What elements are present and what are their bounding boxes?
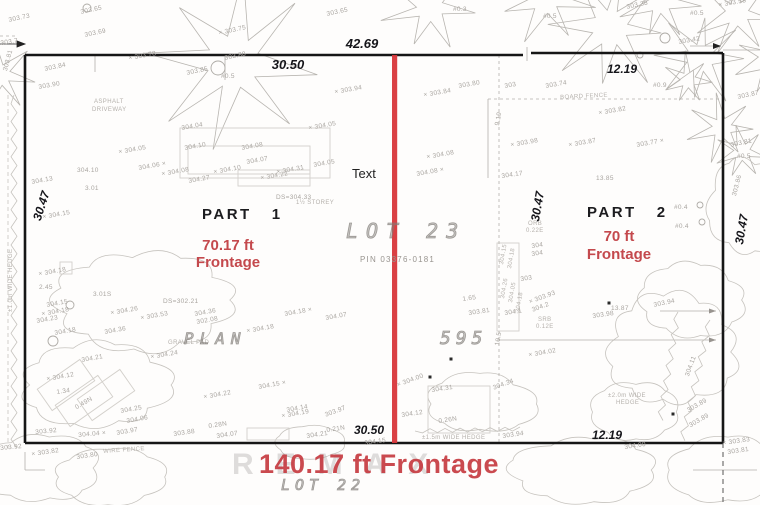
survey-annotation: 303.38 [626, 0, 649, 11]
survey-annotation: 1.34 [56, 387, 71, 396]
survey-annotation: ±1.5m WIDE HEDGE [422, 435, 485, 441]
survey-annotation: 303.92 [0, 443, 22, 452]
survey-annotation: 0.12E [536, 324, 554, 330]
dimension-top-total: 42.69 [330, 36, 394, 51]
part2-frontage-line1: 70 ft [588, 228, 650, 245]
survey-annotation: WIRE FENCE [103, 446, 145, 455]
survey-annotation: × 304.18 [246, 323, 275, 335]
plan-label: PLAN [184, 329, 247, 348]
survey-annotation: 304.36 [104, 325, 127, 336]
part2-word: PART [587, 204, 637, 221]
part1-title: PART1 [202, 206, 283, 223]
survey-annotation: 303.65 [80, 4, 103, 15]
lot-22-label: LOT 22 [281, 476, 365, 494]
survey-annotation: 303.92 [35, 427, 57, 436]
survey-annotation: 303.69 [84, 27, 107, 38]
survey-annotation: 10.5 [494, 331, 503, 346]
dimension-top-left: 30.50 [262, 57, 314, 72]
survey-annotation: 304.07 [325, 311, 348, 322]
survey-annotation: 303.73 [8, 12, 31, 23]
survey-annotation: × 303.94 [334, 84, 363, 96]
survey-annotation: #0.9 [653, 82, 667, 89]
survey-annotation: 303.81 [730, 137, 753, 148]
survey-annotation: SRB [538, 317, 552, 323]
survey-annotation: #0.4 [675, 223, 689, 230]
survey-annotation: 304.15 [364, 437, 386, 447]
survey-annotation: × 304.19 [281, 408, 310, 420]
survey-annotation: 303.85 [186, 65, 209, 76]
part1-number: 1 [272, 206, 283, 223]
survey-annotation: 3.01S [93, 291, 112, 298]
survey-annotation: 303.84 [44, 61, 67, 72]
survey-annotation: 0.22E [526, 228, 544, 234]
survey-annotation: 303 [504, 81, 517, 90]
survey-annotation: 303 [520, 274, 533, 283]
survey-annotation: × 303.78 [128, 50, 157, 62]
survey-annotation: 303.88 [224, 50, 247, 61]
survey-annotation: 304.18 [54, 326, 77, 337]
survey-annotation: 304.05 [313, 158, 336, 169]
survey-annotation: × 303.82 [31, 447, 60, 458]
survey-annotation: 304.25 [120, 404, 143, 415]
survey-annotation: × 304.02 [528, 347, 557, 359]
survey-annotation: 303.87 [737, 89, 760, 100]
survey-annotation: 303.80 [76, 451, 98, 461]
survey-annotation: 303.89 [686, 397, 708, 414]
survey-annotation: #0.5 [221, 73, 235, 80]
survey-annotation: × 304.26 [110, 305, 139, 317]
survey-annotation: 304.21 [306, 430, 328, 440]
survey-annotation: DS=302.21 [163, 298, 198, 305]
survey-annotation: × 303.87 [568, 137, 597, 149]
survey-annotation: 303.80 [458, 79, 481, 90]
survey-annotation: 303.94 [502, 430, 524, 440]
survey-annotation: 304 [531, 249, 544, 258]
survey-annotation: 304.18 × [284, 306, 313, 318]
survey-annotation: 304.13 [31, 175, 54, 186]
survey-annotation: 304.34 [492, 378, 515, 392]
lot-23-label: LOT 23 [346, 219, 466, 243]
survey-annotation: 9.19 [494, 111, 503, 126]
survey-annotation: × 303.98 [510, 137, 539, 149]
survey-annotation: 1.65 [462, 294, 477, 303]
survey-annotation: × 304.22 [203, 389, 232, 401]
survey-annotation: 304.07 [246, 155, 269, 166]
survey-annotation: 0.21N [326, 424, 346, 434]
survey-annotation: 0.49N [74, 396, 94, 411]
survey-annotation: 2.45 [39, 284, 53, 291]
survey-annotation: 303.7 [0, 38, 19, 47]
survey-annotation: 303.97 [324, 405, 347, 419]
survey-annotation: #0.5 [690, 10, 704, 17]
survey-annotation: 303.88 [173, 428, 195, 438]
survey-annotation: 303.89 [688, 412, 710, 429]
survey-annotation: 304.31 [431, 384, 453, 394]
survey-annotation: #0.5 [737, 153, 751, 160]
survey-annotation: 0.28N [208, 420, 228, 430]
survey-annotation: 303.42 [678, 35, 701, 46]
text-annotation: Text [352, 166, 376, 181]
pin-label: PIN 03376-0181 [360, 255, 435, 264]
survey-annotation: 304.12 [401, 409, 423, 419]
dimension-bottom-left: 30.50 [346, 423, 392, 437]
survey-annotation: 304.10 [77, 167, 99, 174]
survey-annotation: × 303.53 [140, 310, 169, 322]
survey-annotation: × 303.75 [218, 24, 247, 37]
survey-annotation: 304.04 [181, 121, 204, 132]
survey-annotation: 304.11 [684, 355, 698, 377]
survey-annotation: 304.23 [36, 314, 59, 325]
survey-annotation: 304.06 [126, 414, 149, 425]
survey-annotation: #0.3 [453, 6, 467, 13]
survey-annotation: 13.85 [596, 175, 614, 182]
survey-annotation: × 304.05 [118, 144, 147, 156]
survey-annotation: × 304.31 [276, 164, 305, 176]
survey-annotation: #0.5 [543, 13, 557, 20]
survey-annotation: 303.81 [2, 49, 14, 72]
survey-annotation: 304.18 [507, 248, 517, 269]
survey-annotation: 303.65 [326, 6, 349, 17]
part1-word: PART [202, 206, 252, 223]
survey-annotation: 303.81 [727, 446, 749, 456]
survey-annotation: 304.21 [81, 353, 104, 364]
survey-annotation: ±2.0m WIDE [608, 393, 646, 399]
survey-annotation: × 304.08 [161, 166, 190, 178]
dimension-bottom-right: 12.19 [584, 428, 630, 442]
survey-annotation: × 304.24 [150, 349, 179, 361]
survey-annotation: HEDGE [616, 400, 639, 406]
survey-annotation: 303.94 [653, 297, 676, 308]
survey-annotation: × 304.18 [38, 266, 67, 278]
survey-annotation: BOARD FENCE [560, 93, 608, 101]
survey-annotation: × 304.05 [308, 120, 337, 132]
part1-frontage-line2: Frontage [182, 254, 274, 271]
survey-annotation: 0.26N [438, 415, 458, 425]
part2-frontage-line2: Frontage [576, 246, 662, 263]
survey-annotation: × 304.10 [213, 164, 242, 176]
survey-annotation: 303.97 [116, 426, 139, 437]
survey-annotation: 304.07 [216, 430, 238, 440]
survey-annotation: 304.04 × [78, 430, 106, 439]
survey-plan-image: 303.73303.65303.69303.7× 303.78303.84303… [0, 0, 760, 505]
part2-title: PART2 [587, 204, 668, 221]
survey-annotation: × 303.82 [598, 105, 627, 117]
survey-annotation: 303.77 × [636, 137, 665, 149]
survey-annotation: 303.74 [545, 79, 568, 90]
survey-annotation: DRIVEWAY [92, 107, 127, 113]
survey-annotation: 304.08 × [416, 166, 445, 178]
survey-annotation: #0.4 [674, 204, 688, 211]
survey-annotation: 304.18 [515, 292, 525, 313]
survey-annotation: 303.90 [38, 80, 61, 91]
survey-annotation: 304.17 [501, 170, 523, 180]
plan-number: 595 [440, 328, 488, 349]
survey-annotation: 304.27 [188, 174, 211, 185]
part2-number: 2 [657, 204, 668, 221]
survey-annotation: 3.01 [85, 185, 99, 192]
survey-annotation: × 304.08 [426, 149, 455, 161]
survey-annotation: 304.10 [184, 141, 207, 152]
survey-annotation: × 303.84 [423, 87, 452, 99]
survey-annotation: 303.98 [592, 310, 614, 320]
survey-annotation: 304.08 [241, 141, 264, 152]
survey-annotation: 304.00 [624, 441, 646, 451]
dimension-top-right: 12.19 [596, 62, 648, 76]
survey-annotation: ASPHALT [94, 99, 124, 105]
survey-annotation: 304.15 × [258, 379, 287, 391]
survey-annotation: × 304.00 [396, 372, 425, 388]
survey-annotation: ±1.0m WIDE HEDGE [8, 249, 14, 312]
part1-frontage-line1: 70.17 ft [182, 237, 274, 254]
survey-annotation: 1½ STOREY [296, 200, 334, 206]
survey-annotation: 303.81 [468, 307, 490, 317]
survey-annotation: × 303.58 [718, 0, 747, 9]
survey-annotation: 303.86 [731, 174, 743, 197]
survey-annotation: × 304.12 [46, 371, 75, 383]
